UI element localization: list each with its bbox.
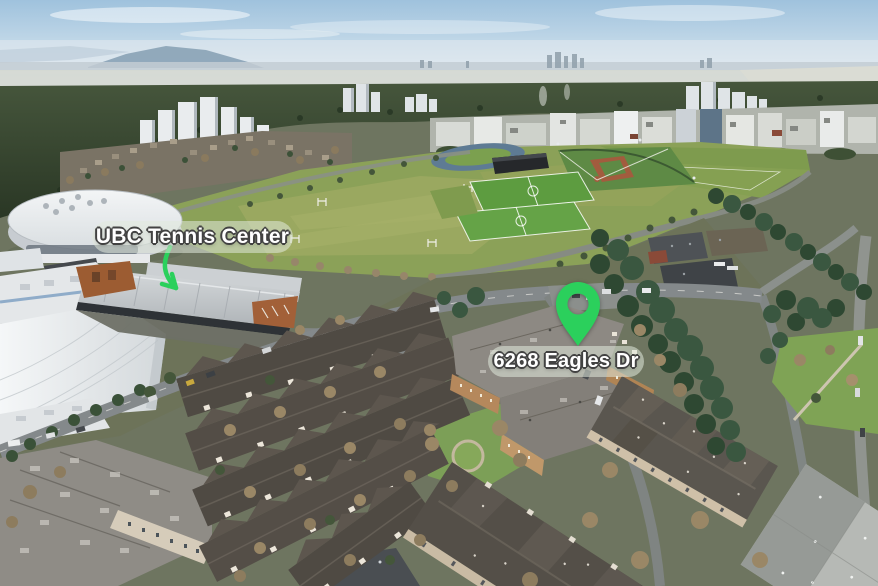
tennis-center-label: UBC Tennis Center <box>92 221 293 253</box>
steam-plume <box>539 86 547 106</box>
property-address-label: 6268 Eagles Dr <box>488 346 644 377</box>
aerial-listing-photo: UBC Tennis Center 6268 Eagles Dr <box>0 0 878 586</box>
aerial-photo <box>0 0 878 586</box>
location-pin-icon <box>552 280 604 352</box>
